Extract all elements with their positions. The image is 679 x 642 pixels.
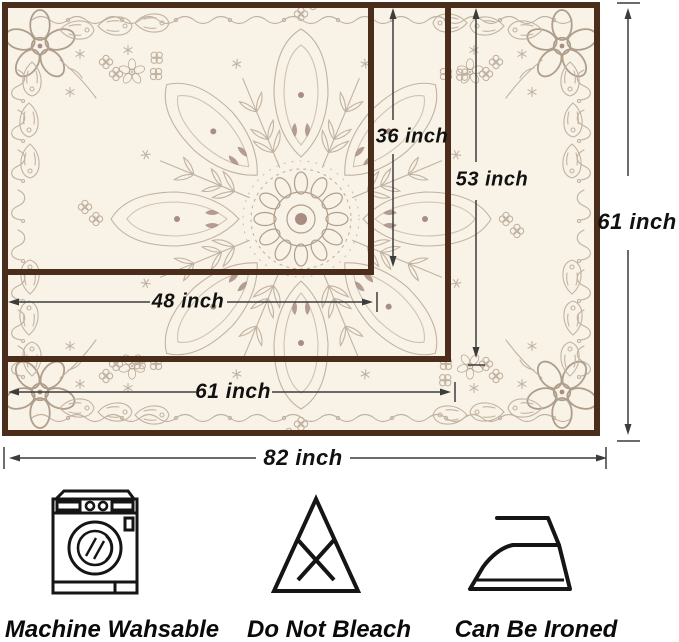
dimension-label-inner-width: 48 inch <box>152 291 224 314</box>
size-overlay-48x36 <box>2 2 374 275</box>
dimension-label-inner-height: 36 inch <box>376 126 448 149</box>
do-not-bleach-icon <box>270 494 362 596</box>
tablecloth-size-diagram: 36 inch 53 inch 61 inch 48 inch 61 inch … <box>0 0 679 642</box>
care-label-machine-washable: Machine Wahsable <box>5 616 219 642</box>
dimension-label-middle-width: 61 inch <box>195 380 271 404</box>
iron-icon <box>464 514 576 596</box>
care-label-do-not-bleach: Do Not Bleach <box>247 616 411 642</box>
washing-machine-icon <box>50 487 140 595</box>
care-label-can-be-ironed: Can Be Ironed <box>455 616 618 642</box>
dimension-label-middle-height: 53 inch <box>456 169 528 192</box>
dimension-label-outer-width: 82 inch <box>263 445 342 471</box>
dimension-label-outer-height: 61 inch <box>597 209 676 235</box>
